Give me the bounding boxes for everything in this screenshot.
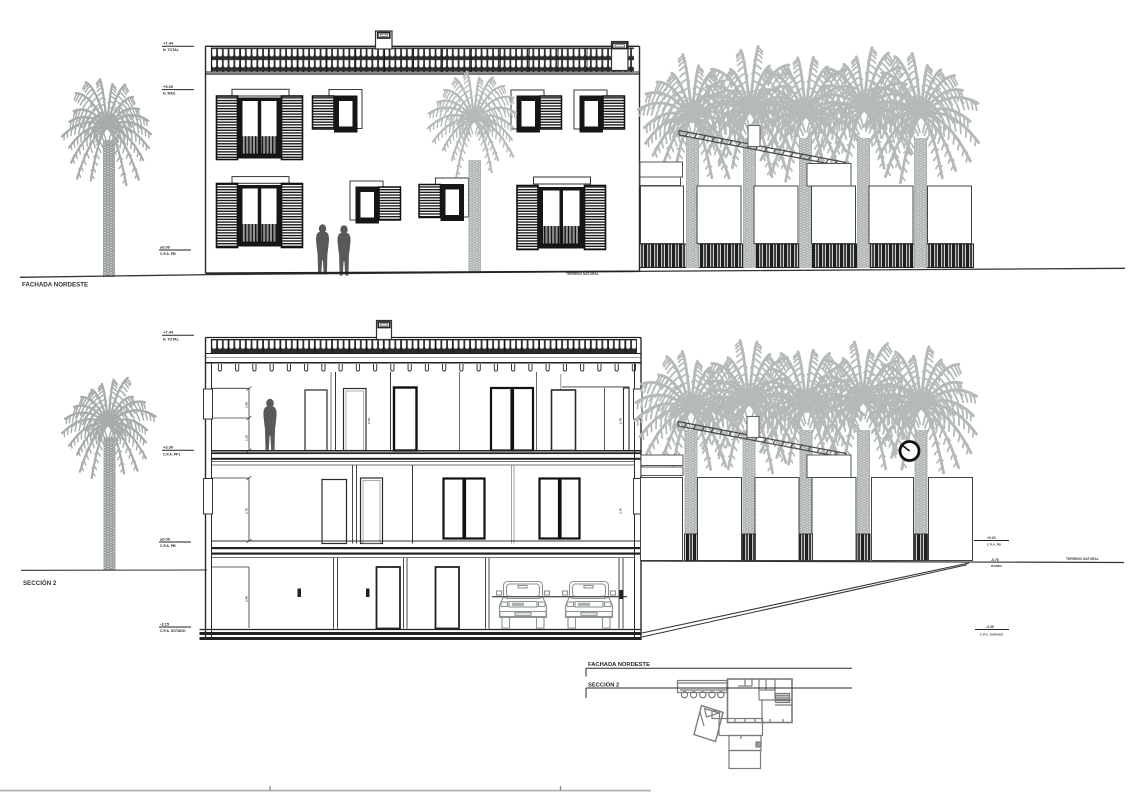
svg-text:C.P.A. SOTANO: C.P.A. SOTANO [160,629,186,633]
svg-text:C.P.A. PB: C.P.A. PB [160,544,176,548]
svg-text:+7.44: +7.44 [163,41,174,46]
svg-text:-0.76: -0.76 [991,558,999,562]
svg-text:C.P.A. GARAGE: C.P.A. GARAGE [980,633,1003,637]
svg-text:SECCIÓN 2: SECCIÓN 2 [588,680,619,688]
svg-text:C.P.A. PB: C.P.A. PB [160,252,176,256]
svg-text:2.40: 2.40 [245,596,249,602]
svg-text:-3.15: -3.15 [160,621,170,626]
svg-text:TERRENO NATURAL: TERRENO NATURAL [566,272,599,276]
svg-text:N. MAX.: N. MAX. [163,92,176,96]
svg-text:RAMPA: RAMPA [991,564,1003,568]
svg-text:2.76: 2.76 [245,508,249,514]
svg-text:-3.39: -3.39 [986,625,994,629]
svg-text:+0.20: +0.20 [987,536,996,540]
svg-text:±0.00: ±0.00 [160,536,171,541]
svg-text:N. TOTAL: N. TOTAL [163,337,180,341]
svg-text:FACHADA NORDESTE: FACHADA NORDESTE [588,662,650,668]
svg-text:C.P.A. PP1: C.P.A. PP1 [163,452,180,456]
svg-text:2.76: 2.76 [619,508,623,514]
svg-text:2.70: 2.70 [367,418,371,424]
svg-text:2.70: 2.70 [619,418,623,424]
svg-text:1.10: 1.10 [245,435,249,441]
svg-text:FACHADA NORDESTE: FACHADA NORDESTE [22,282,88,289]
svg-text:N. TOTAL: N. TOTAL [163,48,180,52]
svg-text:+3.30: +3.30 [163,445,174,450]
svg-text:1.05: 1.05 [245,402,249,408]
svg-text:C.P.A. PB: C.P.A. PB [987,542,1002,546]
svg-text:+5.00: +5.00 [163,84,174,89]
svg-text:+7.44: +7.44 [163,330,174,335]
svg-text:±0.00: ±0.00 [160,244,171,249]
svg-text:SECCIÓN 2: SECCIÓN 2 [23,579,57,587]
svg-text:TERRENO NATURAL: TERRENO NATURAL [1066,557,1099,561]
